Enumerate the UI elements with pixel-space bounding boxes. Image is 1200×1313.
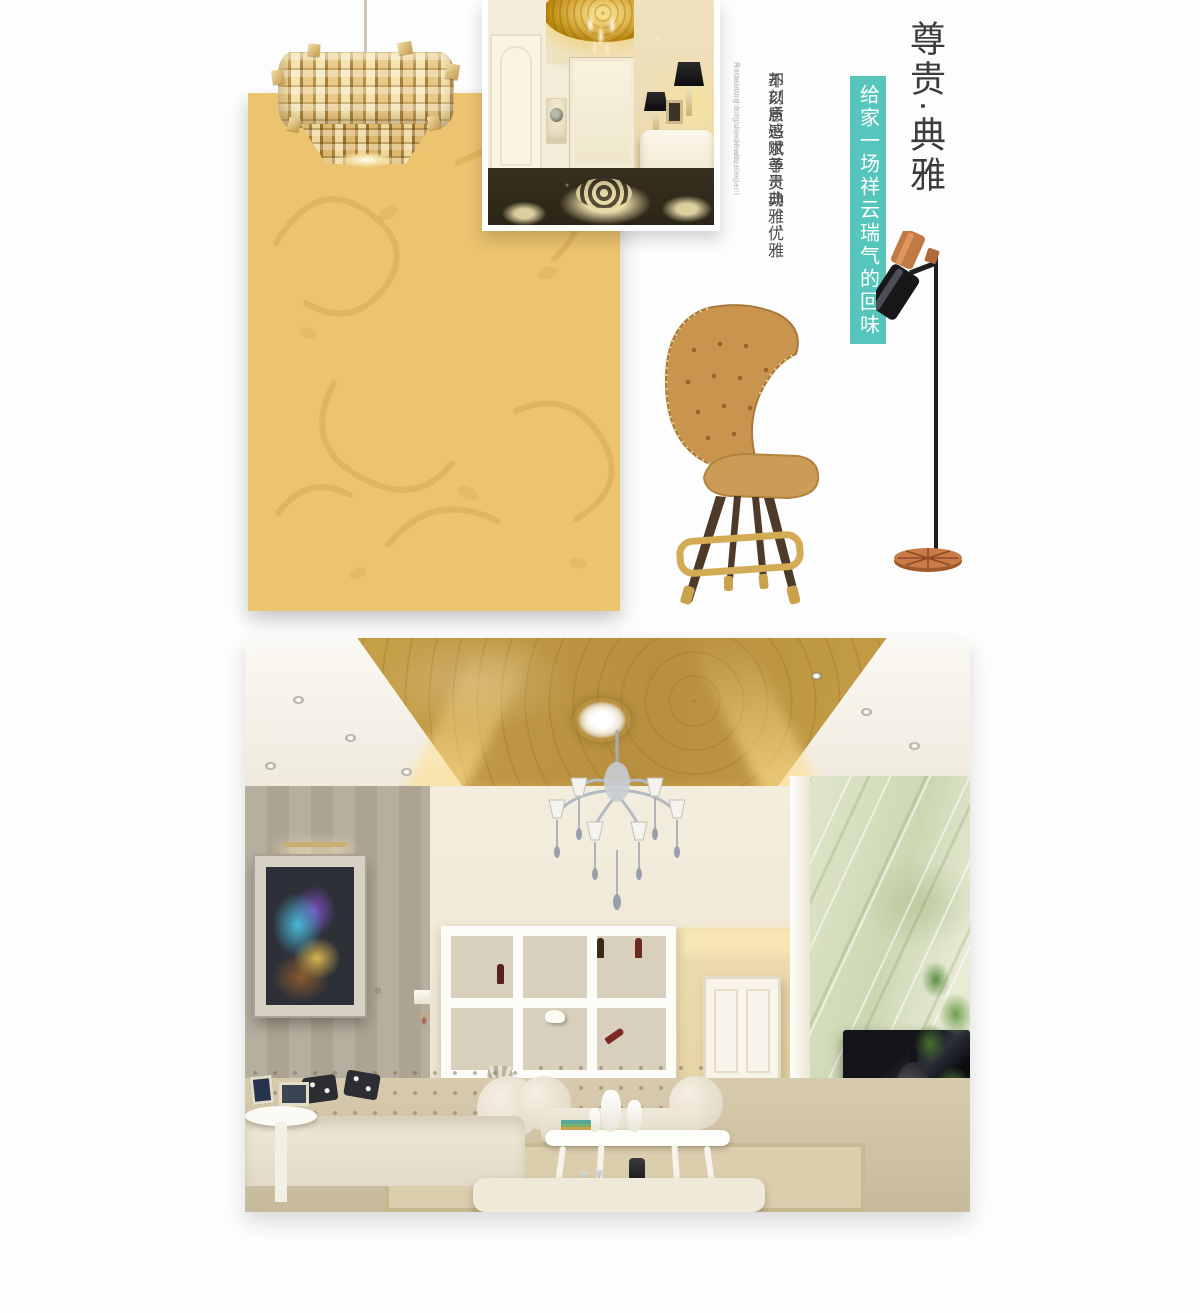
recessed-light <box>345 734 356 742</box>
floor-lamp-image <box>876 231 966 579</box>
hallway-photo <box>482 0 720 231</box>
round-side-table <box>245 1106 317 1212</box>
chandelier-inner-light <box>336 152 396 168</box>
english-line-3: He texture to give clever, elegant <box>730 62 742 196</box>
chandelier-cord <box>364 0 367 58</box>
table-lamp-shade <box>644 92 668 111</box>
wine-bottle <box>497 964 504 984</box>
recessed-light <box>401 768 412 776</box>
recessed-light <box>909 742 920 750</box>
lamp-stem <box>934 257 938 549</box>
coffee-table <box>545 1130 730 1146</box>
hallway-corridor-opening <box>570 58 634 168</box>
photo-frame <box>279 1082 309 1106</box>
liquor-bottle <box>597 938 604 958</box>
abstract-painting <box>255 856 365 1016</box>
recessed-light <box>265 762 276 770</box>
tufted-ottoman <box>473 1178 765 1212</box>
book-stack <box>561 1120 591 1130</box>
tagline-line-2: 却以质感赋予灵动、优雅 <box>761 72 786 259</box>
crystal-chandelier <box>533 730 701 935</box>
promo-page: 尊贵·典雅 给家一场祥云瑞气的回味 不刻意追求尊贵典雅， 却以质感赋予灵动、优雅… <box>0 0 1200 1313</box>
stool-seat <box>704 454 818 498</box>
stool-legs <box>684 496 800 602</box>
gold-chandelier-image <box>278 0 454 172</box>
horse-figurine <box>545 1010 565 1023</box>
hallway-white-door <box>490 34 542 190</box>
bar-stool-image <box>646 298 828 616</box>
wine-bottle <box>635 938 642 958</box>
hallway-crystal-chandelier <box>582 10 624 58</box>
recessed-light <box>811 672 822 680</box>
photo-frame <box>250 1075 275 1105</box>
white-ginger-jar <box>627 1100 642 1132</box>
recessed-light <box>861 708 872 716</box>
recessed-light <box>293 696 304 704</box>
patterned-pillow <box>343 1069 381 1101</box>
console-photo-frame <box>666 100 683 124</box>
section-title: 尊贵·典雅 <box>899 20 951 235</box>
living-room-photo <box>245 638 970 1212</box>
white-ginger-jar <box>601 1090 621 1132</box>
picture-light <box>283 842 347 847</box>
table-lamp-shade <box>674 62 704 86</box>
